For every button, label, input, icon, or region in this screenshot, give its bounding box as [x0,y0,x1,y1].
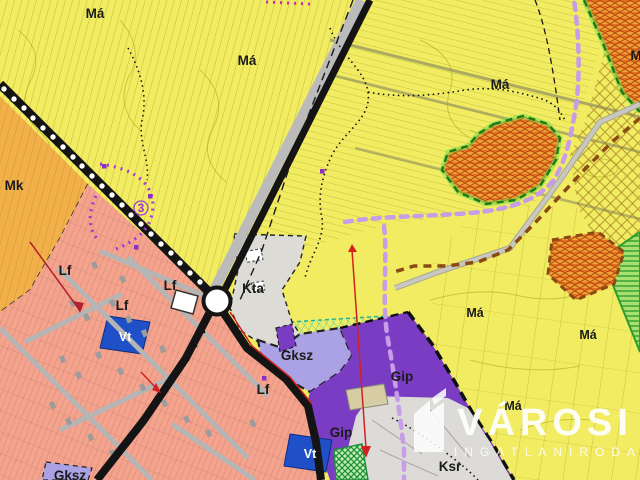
zone-label-vt-2: Vt [304,447,317,461]
roundabout [204,288,231,315]
zone-label-lf-3: Lf [116,298,129,313]
zone-label-ma-1: Má [86,6,105,21]
svg-text:3: 3 [138,201,145,215]
watermark-title: VÁROSI [457,400,633,444]
zone-label-lf-2: Lf [164,278,177,293]
zone-label-gip-2: Gip [330,425,353,440]
zone-label-gksz-2: Gksz [54,468,87,480]
zone-label-ma-2: Má [238,53,257,68]
zone-label-ksr: Ksr [439,459,462,474]
zoning-map-canvas[interactable]: Má Má Má M Mk Lf Lf Lf Kta Vt Gksz Lf Gi… [0,0,640,480]
zone-label-gip-1: Gip [391,369,414,384]
zone-label-ma-4: Má [466,306,483,320]
zoning-map-screenshot: Má Má Má M Mk Lf Lf Lf Kta Vt Gksz Lf Gi… [0,0,640,480]
zone-label-lf-1: Lf [59,263,72,278]
zone-label-lf-4: Lf [257,382,270,397]
zone-label-vt-1: Vt [119,330,132,344]
zone-label-gksz-1: Gksz [281,348,314,363]
zone-label-ma-5: Má [579,328,596,342]
zone-label-m-edge: M [630,48,640,63]
zone-label-mk: Mk [5,178,24,193]
zone-label-kta: Kta [242,281,264,296]
zone-label-ma-3: Má [491,77,510,92]
watermark-subtitle: INGATLANIRODA [454,445,640,459]
